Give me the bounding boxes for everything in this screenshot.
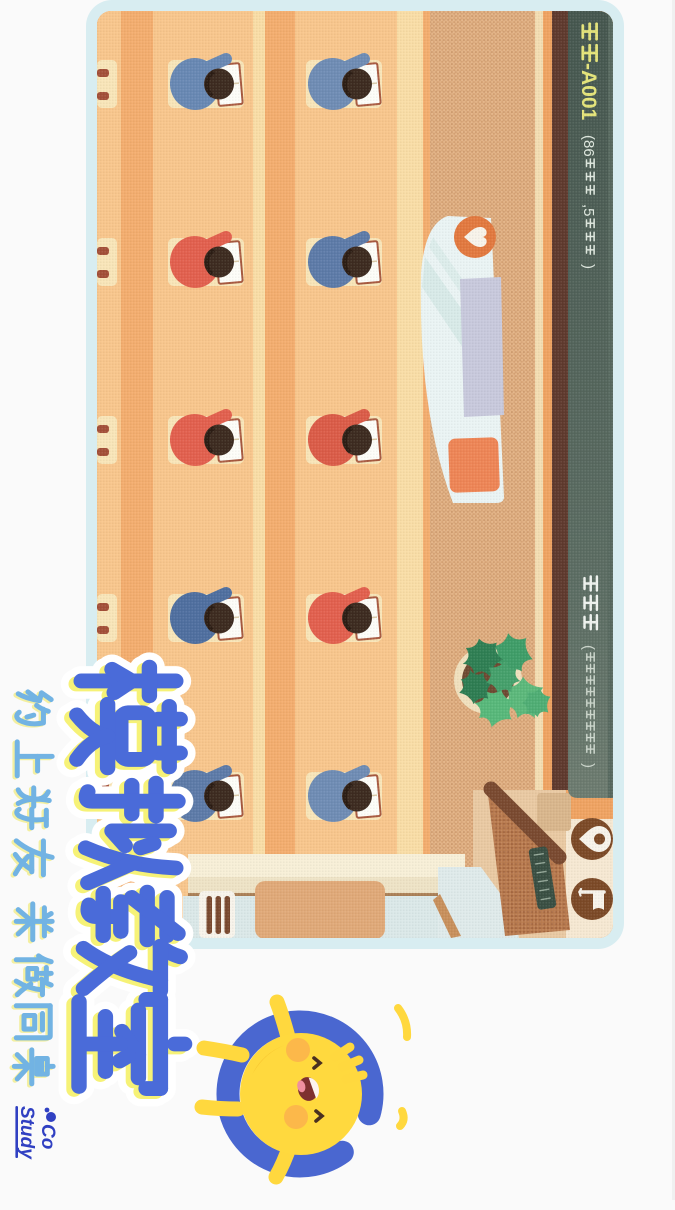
svg-text:Study: Study [16,1106,37,1160]
svg-text:Co: Co [37,1124,58,1149]
